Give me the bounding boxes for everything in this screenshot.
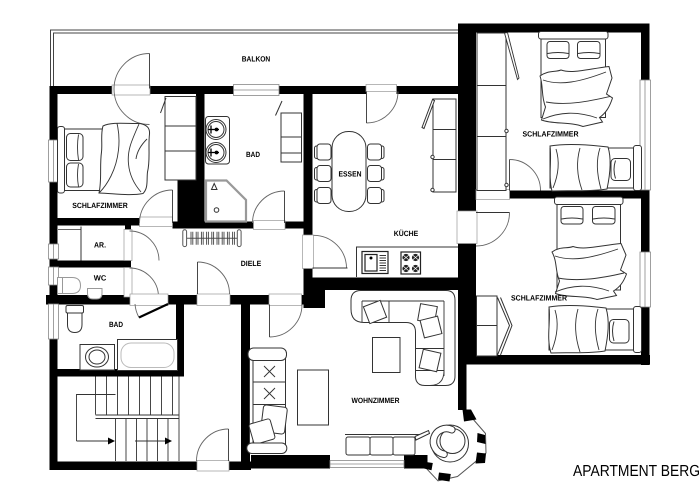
- svg-text:WOHNZIMMER: WOHNZIMMER: [352, 396, 400, 405]
- svg-text:BAD: BAD: [246, 150, 260, 159]
- svg-text:DIELE: DIELE: [241, 259, 262, 268]
- svg-text:SCHLAFZIMMER: SCHLAFZIMMER: [523, 130, 579, 139]
- svg-text:ESSEN: ESSEN: [339, 170, 362, 179]
- svg-text:KÜCHE: KÜCHE: [394, 229, 419, 238]
- svg-text:BALKON: BALKON: [242, 55, 271, 64]
- svg-text:SCHLAFZIMMER: SCHLAFZIMMER: [511, 294, 567, 303]
- svg-text:BAD: BAD: [109, 320, 123, 329]
- svg-text:WC: WC: [94, 274, 107, 283]
- svg-text:APARTMENT BERG: APARTMENT BERG: [573, 463, 700, 480]
- svg-text:SCHLAFZIMMER: SCHLAFZIMMER: [72, 201, 128, 210]
- svg-text:AR.: AR.: [94, 241, 106, 250]
